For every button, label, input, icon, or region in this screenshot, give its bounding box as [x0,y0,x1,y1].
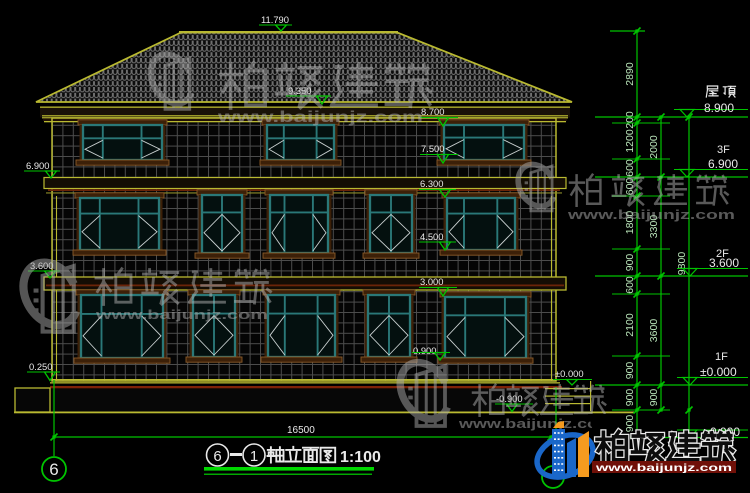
svg-text:±0.000: ±0.000 [700,365,737,379]
svg-text:900: 900 [648,389,660,407]
svg-text:8.700: 8.700 [421,106,444,117]
svg-text:6.300: 6.300 [420,178,443,189]
svg-text:600: 600 [624,276,636,294]
svg-text:www.baijunjz.com: www.baijunjz.com [217,109,423,126]
svg-text:4.500: 4.500 [420,231,443,242]
svg-text:6: 6 [49,460,58,479]
svg-text:3.600: 3.600 [709,256,739,270]
svg-text:6.900: 6.900 [26,160,49,171]
svg-text:www.baijunjz.com: www.baijunjz.com [594,462,732,474]
svg-text:6.900: 6.900 [708,157,738,171]
svg-text:2100: 2100 [624,313,636,337]
svg-text:3F: 3F [717,144,730,156]
svg-text:11.790: 11.790 [261,14,289,25]
svg-text:900: 900 [624,362,636,380]
svg-text:8.900: 8.900 [704,101,734,115]
svg-text:www.baijunjz.com: www.baijunjz.com [567,207,735,222]
svg-text:0.900: 0.900 [413,345,436,356]
svg-text:16500: 16500 [287,425,315,436]
svg-text:3600: 3600 [648,319,660,343]
svg-text:1:100: 1:100 [340,449,381,466]
svg-text:1200: 1200 [624,129,636,153]
svg-text:2890: 2890 [624,62,636,86]
svg-text:7.500: 7.500 [421,143,444,154]
svg-text:3.000: 3.000 [420,276,443,287]
svg-text:2000: 2000 [648,135,660,159]
svg-text:1F: 1F [715,351,728,363]
svg-text:6: 6 [213,448,221,465]
svg-text:200: 200 [624,111,636,129]
svg-text:900: 900 [624,254,636,272]
svg-text:www.baijunjz.com: www.baijunjz.com [94,307,268,322]
svg-text:±0.000: ±0.000 [555,368,584,379]
svg-text:900: 900 [624,389,636,407]
svg-text:900: 900 [624,415,636,433]
svg-text:1: 1 [250,448,258,465]
svg-text:600: 600 [624,159,636,177]
svg-text:0.250: 0.250 [29,361,52,372]
